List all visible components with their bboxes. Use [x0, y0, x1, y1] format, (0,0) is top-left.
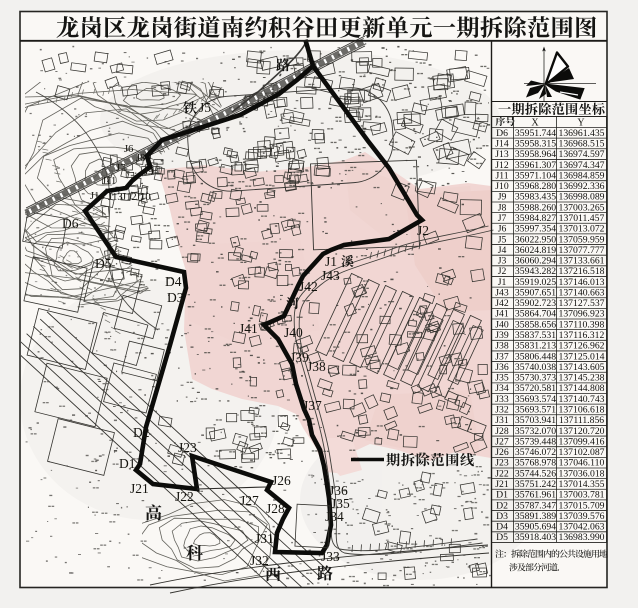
svg-text:J2: J2	[498, 266, 507, 277]
svg-text:137146.013: 137146.013	[558, 277, 604, 288]
svg-text:J41: J41	[495, 309, 509, 320]
svg-text:D1: D1	[496, 490, 508, 501]
svg-text:J13: J13	[108, 192, 123, 203]
svg-text:D6: D6	[62, 216, 79, 231]
svg-text:137106.618: 137106.618	[558, 404, 604, 415]
svg-text:J9: J9	[498, 192, 507, 203]
svg-text:J8: J8	[136, 153, 145, 164]
svg-text:35961.307: 35961.307	[515, 160, 556, 171]
svg-text:J11: J11	[102, 176, 116, 187]
svg-text:J5: J5	[199, 100, 211, 115]
svg-text:J33: J33	[321, 549, 340, 564]
svg-text:J1: J1	[325, 254, 337, 269]
svg-text:35837.531: 35837.531	[515, 330, 556, 341]
svg-text:35787.347: 35787.347	[515, 500, 556, 511]
svg-text:35693.571: 35693.571	[515, 404, 556, 415]
svg-text:137102.087: 137102.087	[558, 447, 604, 458]
svg-text:J26: J26	[272, 473, 291, 488]
svg-text:D4: D4	[496, 522, 508, 533]
svg-text:137127.537: 137127.537	[558, 298, 604, 309]
svg-text:35958.964: 35958.964	[515, 149, 556, 160]
svg-text:36060.294: 36060.294	[515, 256, 556, 267]
svg-text:J2: J2	[417, 223, 429, 238]
svg-text:35968.280: 35968.280	[515, 181, 556, 192]
svg-text:35907.651: 35907.651	[515, 287, 556, 298]
svg-text:D2: D2	[496, 500, 508, 511]
svg-text:J7: J7	[116, 163, 125, 174]
svg-text:137144.808: 137144.808	[558, 383, 604, 394]
svg-text:35761.961: 35761.961	[515, 490, 556, 501]
svg-text:J41: J41	[239, 321, 258, 336]
svg-text:J3: J3	[498, 256, 507, 267]
svg-text:J21: J21	[495, 479, 509, 490]
svg-text:J27: J27	[495, 436, 509, 447]
svg-text:35751.242: 35751.242	[515, 479, 556, 490]
svg-text:J32: J32	[495, 404, 509, 415]
svg-text:J28: J28	[266, 501, 285, 516]
svg-text:136968.515: 136968.515	[558, 138, 604, 149]
svg-text:J10: J10	[495, 181, 509, 192]
svg-text:136961.435: 136961.435	[558, 128, 604, 139]
svg-text:J22: J22	[175, 489, 194, 504]
svg-text:35919.025: 35919.025	[515, 277, 556, 288]
svg-text:J37: J37	[495, 351, 509, 362]
svg-text:J14: J14	[90, 191, 105, 202]
svg-text:35744.526: 35744.526	[515, 468, 556, 479]
svg-text:137003.265: 137003.265	[558, 202, 604, 213]
svg-text:35768.978: 35768.978	[515, 458, 556, 469]
svg-text:137110.398: 137110.398	[559, 319, 605, 330]
svg-text:35902.723: 35902.723	[515, 298, 556, 309]
svg-text:J33: J33	[495, 394, 509, 405]
svg-text:J22: J22	[495, 468, 509, 479]
svg-text:J40: J40	[284, 325, 303, 340]
svg-text:137013.072: 137013.072	[558, 224, 604, 235]
svg-text:35891.389: 35891.389	[515, 511, 556, 522]
svg-text:J31: J31	[255, 531, 274, 546]
svg-text:137111.856: 137111.856	[559, 415, 604, 426]
svg-text:136992.336: 136992.336	[558, 181, 604, 192]
svg-text:J35: J35	[495, 373, 509, 384]
svg-text:35984.827: 35984.827	[515, 213, 556, 224]
svg-text:35918.403: 35918.403	[515, 532, 556, 543]
svg-text:137039.576: 137039.576	[558, 511, 604, 522]
svg-text:D1: D1	[119, 456, 136, 471]
svg-text:J38: J38	[307, 359, 326, 374]
svg-text:137216.518: 137216.518	[558, 266, 604, 277]
svg-text:J42: J42	[495, 298, 509, 309]
svg-text:J10: J10	[136, 192, 151, 203]
svg-text:J34: J34	[495, 383, 509, 394]
svg-text:J7: J7	[498, 213, 507, 224]
svg-text:35997.354: 35997.354	[515, 224, 556, 235]
svg-text:D3: D3	[167, 290, 184, 305]
svg-text:35983.435: 35983.435	[515, 192, 556, 203]
svg-text:35806.448: 35806.448	[515, 351, 556, 362]
svg-text:36022.950: 36022.950	[515, 234, 556, 245]
svg-text:J5: J5	[498, 234, 507, 245]
svg-text:137011.457: 137011.457	[559, 213, 605, 224]
svg-text:Y: Y	[577, 117, 584, 128]
svg-text:J40: J40	[495, 319, 509, 330]
svg-text:35988.260: 35988.260	[515, 202, 556, 213]
svg-text:136984.859: 136984.859	[558, 170, 604, 181]
svg-text:35958.315: 35958.315	[515, 138, 556, 149]
svg-text:35739.448: 35739.448	[515, 436, 556, 447]
svg-text:J23: J23	[178, 440, 197, 455]
svg-text:J43: J43	[495, 287, 509, 298]
svg-text:J8: J8	[498, 202, 507, 213]
svg-text:J6: J6	[124, 144, 133, 155]
svg-text:J39: J39	[495, 330, 509, 341]
svg-text:137145.238: 137145.238	[558, 373, 604, 384]
svg-text:35703.941: 35703.941	[515, 415, 556, 426]
svg-text:35746.072: 35746.072	[515, 447, 556, 458]
svg-text:D2: D2	[133, 425, 150, 440]
svg-text:J27: J27	[240, 493, 259, 508]
svg-text:D3: D3	[496, 511, 508, 522]
svg-text:137140.743: 137140.743	[558, 394, 604, 405]
svg-text:137125.014: 137125.014	[558, 351, 604, 362]
svg-text:J12: J12	[122, 192, 137, 203]
svg-text:137014.355: 137014.355	[558, 479, 604, 490]
svg-text:137099.416: 137099.416	[558, 436, 604, 447]
svg-text:J34: J34	[325, 509, 344, 524]
svg-text:J14: J14	[495, 138, 509, 149]
svg-text:J39: J39	[290, 350, 309, 365]
svg-text:J36: J36	[495, 362, 509, 373]
svg-text:J6: J6	[498, 224, 507, 235]
svg-text:137143.605: 137143.605	[558, 362, 604, 373]
svg-text:35864.704: 35864.704	[515, 309, 556, 320]
svg-text:J1: J1	[498, 277, 507, 288]
svg-text:35740.038: 35740.038	[515, 362, 556, 373]
svg-text:36024.819: 36024.819	[515, 245, 556, 256]
svg-text:35693.574: 35693.574	[515, 394, 556, 405]
svg-text:J28: J28	[495, 426, 509, 437]
svg-text:137015.709: 137015.709	[558, 500, 604, 511]
svg-text:35858.656: 35858.656	[515, 319, 556, 330]
svg-text:J43: J43	[321, 268, 340, 283]
svg-text:J32: J32	[250, 553, 269, 568]
svg-text:137116.312: 137116.312	[559, 330, 605, 341]
svg-text:J31: J31	[495, 415, 509, 426]
svg-text:35971.104: 35971.104	[515, 170, 556, 181]
svg-text:35831.213: 35831.213	[515, 341, 556, 352]
svg-text:X: X	[531, 117, 539, 128]
svg-text:J26: J26	[495, 447, 509, 458]
svg-text:137046.110: 137046.110	[559, 458, 605, 469]
svg-text:137096.923: 137096.923	[558, 309, 604, 320]
svg-text:J37: J37	[303, 398, 322, 413]
svg-text:137003.781: 137003.781	[558, 490, 604, 501]
svg-text:D6: D6	[496, 128, 508, 139]
svg-text:J9: J9	[144, 167, 153, 178]
svg-text:D4: D4	[165, 274, 182, 289]
svg-text:137140.663: 137140.663	[558, 287, 604, 298]
svg-text:D5: D5	[95, 256, 112, 271]
svg-text:35943.282: 35943.282	[515, 266, 556, 277]
svg-text:136974.597: 136974.597	[558, 149, 604, 160]
svg-text:D5: D5	[496, 532, 508, 543]
svg-text:137133.661: 137133.661	[558, 256, 604, 267]
svg-text:136983.990: 136983.990	[558, 532, 604, 543]
svg-text:136998.089: 136998.089	[558, 192, 604, 203]
svg-text:J42: J42	[299, 279, 318, 294]
svg-text:J12: J12	[495, 160, 509, 171]
svg-text:137120.720: 137120.720	[558, 426, 604, 437]
svg-text:35730.373: 35730.373	[515, 373, 556, 384]
svg-text:35905.694: 35905.694	[515, 522, 556, 533]
svg-text:J38: J38	[495, 341, 509, 352]
svg-text:137036.018: 137036.018	[558, 468, 604, 479]
svg-text:J23: J23	[495, 458, 509, 469]
svg-text:137077.777: 137077.777	[558, 245, 604, 256]
svg-text:J4: J4	[498, 245, 507, 256]
svg-text:35951.744: 35951.744	[515, 128, 556, 139]
svg-text:137126.962: 137126.962	[558, 341, 604, 352]
svg-text:35720.581: 35720.581	[515, 383, 556, 394]
svg-text:137059.959: 137059.959	[558, 234, 604, 245]
svg-text:J13: J13	[495, 149, 509, 160]
svg-text:J21: J21	[130, 481, 149, 496]
svg-text:J11: J11	[495, 170, 508, 181]
svg-text:35732.070: 35732.070	[515, 426, 556, 437]
svg-text:136974.347: 136974.347	[558, 160, 604, 171]
svg-text:137042.063: 137042.063	[558, 522, 604, 533]
